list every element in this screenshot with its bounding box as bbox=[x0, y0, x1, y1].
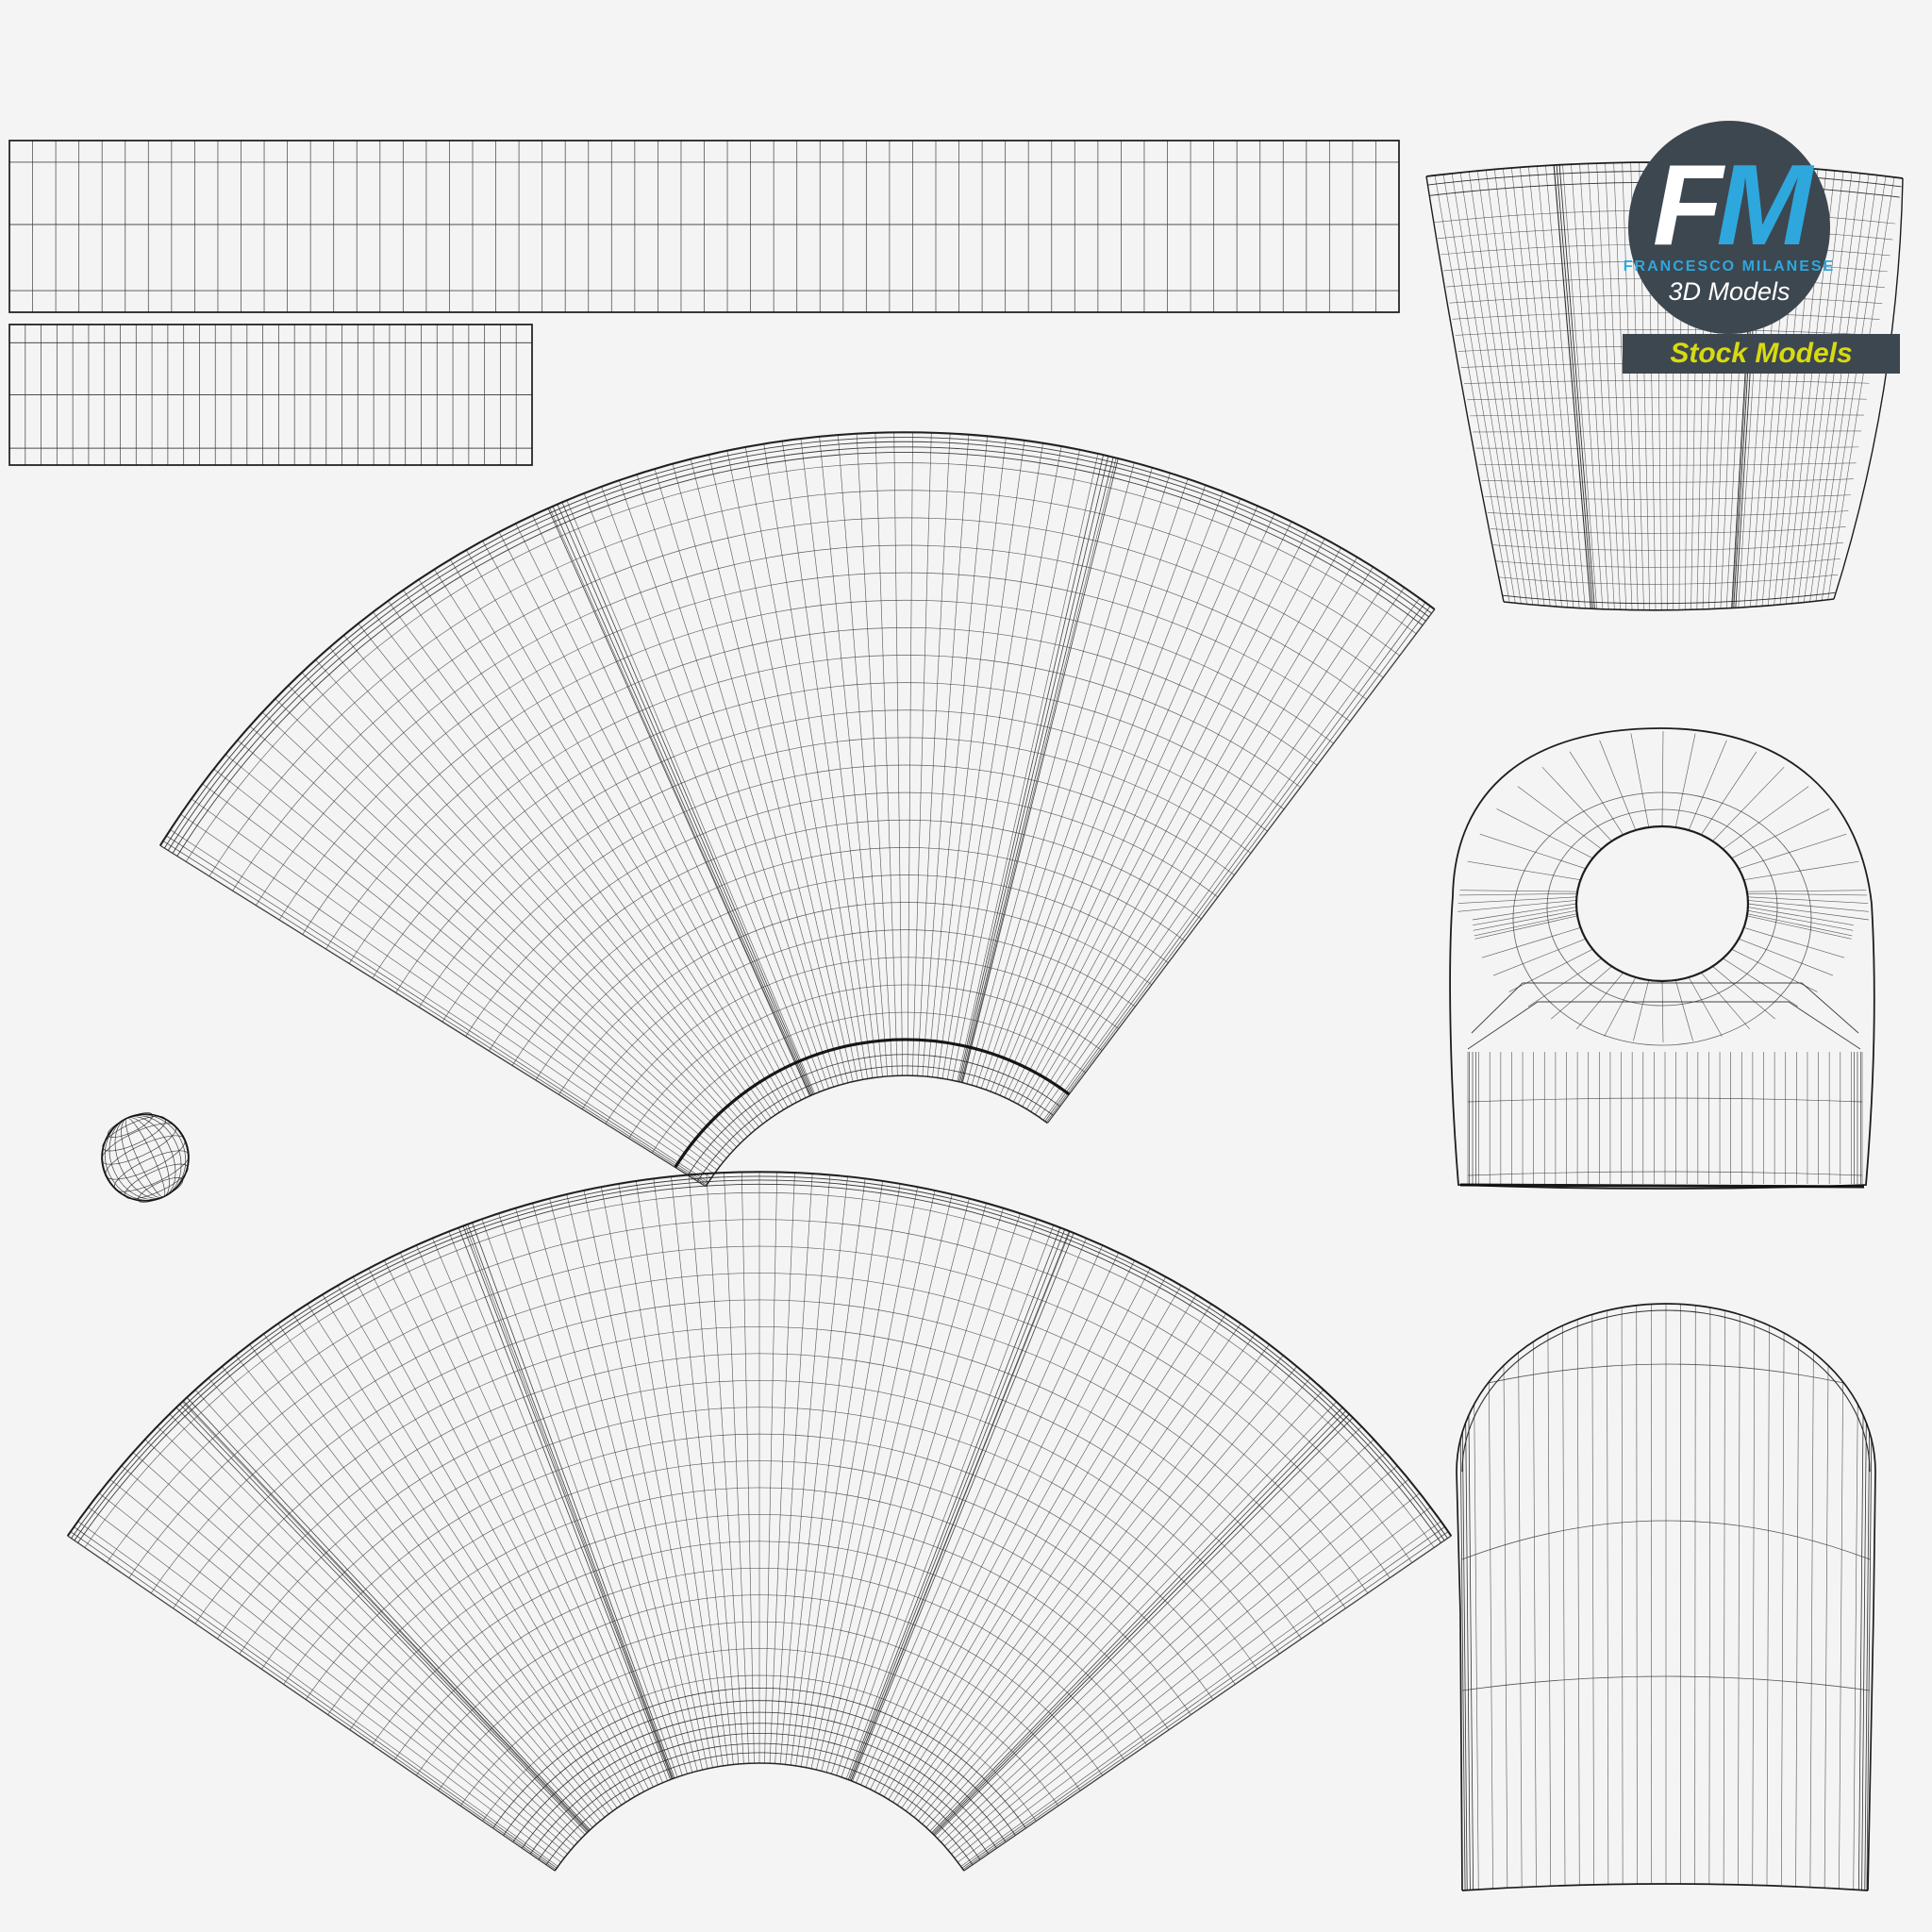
logo-tagline: 3D Models bbox=[1668, 277, 1790, 307]
stock-models-badge: Stock Models bbox=[1623, 334, 1900, 374]
fm-logo: FM FRANCESCO MILANESE 3D Models bbox=[1628, 121, 1830, 334]
uv-fan-lower bbox=[68, 1172, 1452, 1871]
logo-author: FRANCESCO MILANESE bbox=[1624, 258, 1835, 275]
logo-letter-m: M bbox=[1716, 141, 1806, 269]
uv-strip-short bbox=[9, 325, 532, 465]
uv-fan-upper bbox=[160, 432, 1435, 1187]
uv-strip-long bbox=[9, 141, 1399, 312]
logo-letter-f: F bbox=[1653, 141, 1717, 269]
uv-handle-face bbox=[1450, 728, 1874, 1189]
logo-monogram: FM bbox=[1653, 154, 1806, 258]
uv-handle-side bbox=[1457, 1304, 1875, 1890]
uv-sphere bbox=[88, 1100, 203, 1215]
wireframe-meshes bbox=[0, 0, 1932, 1932]
uv-layout-canvas: FM FRANCESCO MILANESE 3D Models Stock Mo… bbox=[0, 0, 1932, 1932]
